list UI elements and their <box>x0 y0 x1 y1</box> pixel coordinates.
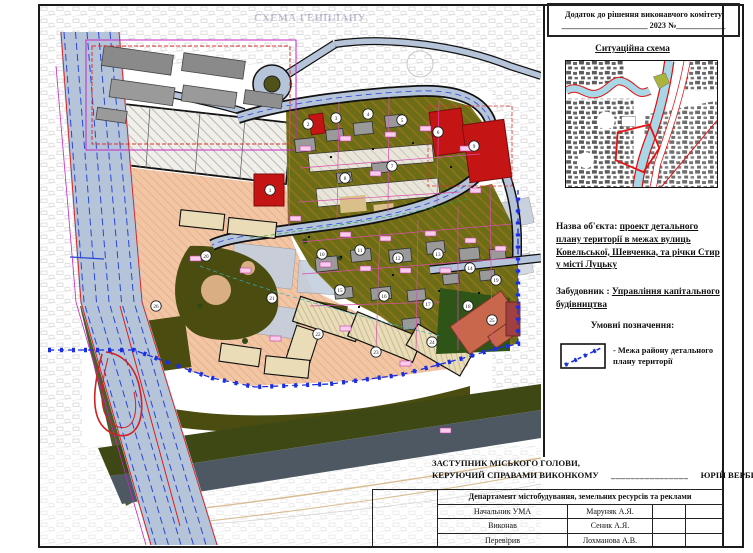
svg-text:16: 16 <box>381 294 387 300</box>
object-name-block: Назва об'єкта: проект детального плану т… <box>556 221 720 272</box>
svg-text:12: 12 <box>395 256 401 262</box>
svg-text:15: 15 <box>337 288 343 294</box>
signature-blank: ________________ <box>611 470 689 480</box>
empty-cell <box>686 519 723 534</box>
svg-text:19: 19 <box>493 278 499 284</box>
empty-cell <box>686 504 723 519</box>
svg-text:7: 7 <box>391 164 394 170</box>
svg-text:11: 11 <box>358 248 363 254</box>
svg-text:2: 2 <box>307 122 310 128</box>
svg-text:13: 13 <box>435 252 441 258</box>
name-cell: Лохманова А.В. <box>568 533 653 548</box>
svg-text:23: 23 <box>373 350 379 356</box>
legend-item-boundary: - Межа району детального плану території <box>560 343 731 369</box>
developer-label: Забудовник : <box>556 287 610 297</box>
stamp-line2: _____________________ 2023 №____________ <box>549 20 738 31</box>
empty-cell <box>653 519 686 534</box>
svg-text:22: 22 <box>315 332 321 338</box>
role-cell: Перевірив <box>438 533 568 548</box>
decision-stamp: Додаток до рішення виконавчого комітету … <box>547 3 740 37</box>
svg-text:14: 14 <box>467 266 473 272</box>
svg-text:10: 10 <box>319 252 325 258</box>
table-header: Департамент містобудування, земельних ре… <box>438 490 723 505</box>
svg-text:21: 21 <box>269 296 275 302</box>
svg-text:5: 5 <box>401 118 404 124</box>
svg-text:26: 26 <box>153 304 159 310</box>
genplan-sheet: СХЕМА ГЕНПЛАНУ <box>0 0 753 553</box>
situational-map <box>565 60 718 188</box>
signature-block: ЗАСТУПНИК МІСЬКОГО ГОЛОВИ, КЕРУЮЧИЙ СПРА… <box>432 458 753 481</box>
signature-line2: КЕРУЮЧИЙ СПРАВАМИ ВИКОНКОМУ ____________… <box>432 470 753 482</box>
svg-text:6: 6 <box>437 130 440 136</box>
svg-text:20: 20 <box>203 254 209 260</box>
developer-block: Забудовник : Управління капітального буд… <box>556 286 720 312</box>
signature-name: ЮРІЙ ВЕРБИЧ <box>701 470 753 480</box>
boundary-swatch-icon <box>560 343 606 369</box>
approval-table: Департамент містобудування, земельних ре… <box>372 489 723 548</box>
name-cell: Сеник А.Я. <box>568 519 653 534</box>
svg-text:8: 8 <box>344 176 347 182</box>
table-row: Департамент містобудування, земельних ре… <box>373 490 723 505</box>
empty-cell <box>653 504 686 519</box>
svg-text:1: 1 <box>269 188 272 194</box>
panel-divider <box>543 4 545 457</box>
svg-text:24: 24 <box>429 340 435 346</box>
legend-title: Умовні позначення: <box>543 321 722 331</box>
role-cell: Виконав <box>438 519 568 534</box>
svg-text:4: 4 <box>367 112 370 118</box>
name-cell: Маруняк А.Я. <box>568 504 653 519</box>
svg-text:17: 17 <box>425 302 431 308</box>
signature-line1: ЗАСТУПНИК МІСЬКОГО ГОЛОВИ, <box>432 458 753 470</box>
role-cell: Начальник УМА <box>438 504 568 519</box>
legend-item-label: - Межа району детального плану території <box>613 343 731 367</box>
object-label: Назва об'єкта: <box>556 222 617 232</box>
table-empty-col <box>373 490 438 548</box>
stamp-line1: Додаток до рішення виконавчого комітету <box>549 9 738 20</box>
svg-text:9: 9 <box>473 144 476 150</box>
empty-cell <box>653 533 686 548</box>
svg-text:25: 25 <box>489 318 495 324</box>
svg-text:18: 18 <box>465 304 471 310</box>
empty-cell <box>686 533 723 548</box>
situational-scheme-title: Ситуаційна схема <box>543 44 722 54</box>
svg-text:3: 3 <box>335 116 338 122</box>
